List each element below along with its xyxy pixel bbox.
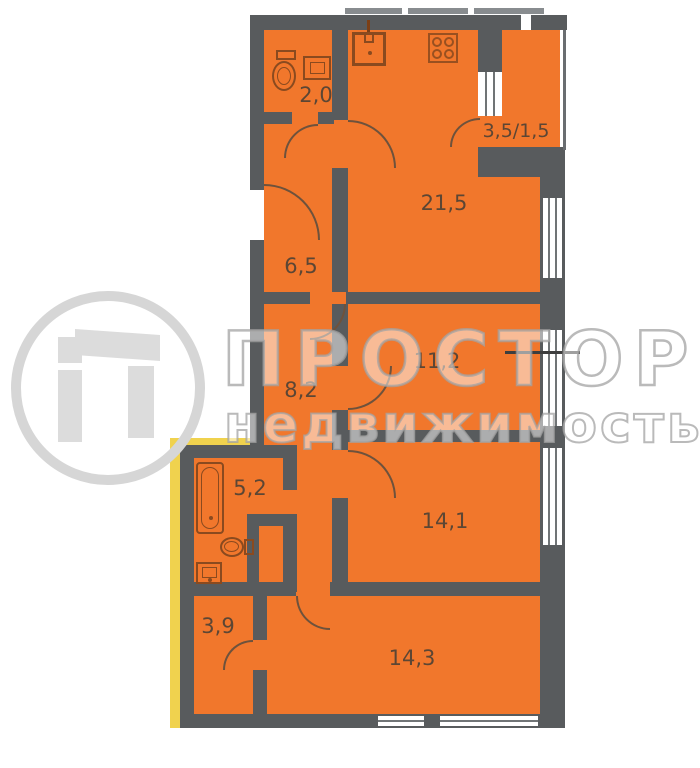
stove-icon — [428, 33, 458, 63]
window-room143-right — [440, 716, 538, 726]
wall-south-divider — [330, 582, 540, 596]
bath-sink-icon — [196, 562, 222, 584]
window-room141 — [543, 448, 562, 545]
kitchen-sink-icon — [352, 32, 386, 66]
window-kitchen — [543, 198, 562, 278]
wall-divider-a — [346, 292, 540, 304]
neighbor-wall-tick — [345, 8, 402, 14]
room-label-room11: 11,2 — [414, 349, 461, 373]
wall-left-upper — [250, 30, 264, 458]
room-label-balcony: 3,5/1,5 — [483, 120, 550, 142]
toilet-icon — [220, 534, 256, 560]
balcony-divider-stub — [478, 30, 502, 72]
wall-wardrobe-east — [253, 596, 267, 640]
room-label-corridor: 8,2 — [284, 378, 317, 402]
balcony-bottom-wall — [478, 147, 565, 177]
wall-south-divider — [180, 582, 296, 596]
wall-bathroom-east — [283, 518, 297, 592]
room-label-kitchen-living: 21,5 — [421, 191, 468, 215]
floor-plan: 2,0 3,5/1,5 21,5 6,5 11,2 8,2 5,2 14,1 3… — [0, 0, 700, 768]
room-label-wc: 2,0 — [299, 83, 332, 107]
wall-kitchen-west-upper — [332, 30, 348, 120]
bathtub-icon — [196, 462, 224, 534]
section-mark-line — [505, 351, 580, 354]
entrance-opening — [250, 190, 264, 240]
toilet-icon — [271, 50, 301, 100]
window-room11 — [543, 330, 562, 426]
wall-corridor-east — [332, 410, 348, 430]
balcony-outer-line — [563, 30, 566, 150]
wall-divider-a — [264, 292, 310, 304]
wall-kitchen-west-lower — [332, 168, 348, 292]
room-label-bathroom: 5,2 — [233, 476, 266, 500]
wall-wc-bottom — [264, 112, 292, 124]
neighbor-wall-tick — [408, 8, 468, 14]
wall-wardrobe-east — [253, 670, 267, 715]
wall-bathroom-east — [283, 458, 297, 490]
wall-top — [250, 15, 567, 30]
room-label-room141: 14,1 — [422, 509, 469, 533]
window-room143-left — [378, 716, 424, 726]
room-label-wardrobe: 3,9 — [201, 614, 234, 638]
balcony-window — [478, 72, 502, 116]
room-label-room143: 14,3 — [389, 646, 436, 670]
neighbor-wall-tick — [474, 8, 544, 14]
wall-divider-b — [332, 430, 540, 442]
wall-corridor-east — [332, 442, 348, 450]
wc-sink-icon — [303, 56, 331, 80]
room-label-hallway: 6,5 — [284, 254, 317, 278]
wall-corridor-east — [332, 498, 348, 582]
wall-top-notch — [521, 15, 531, 30]
wall-step — [180, 445, 297, 458]
